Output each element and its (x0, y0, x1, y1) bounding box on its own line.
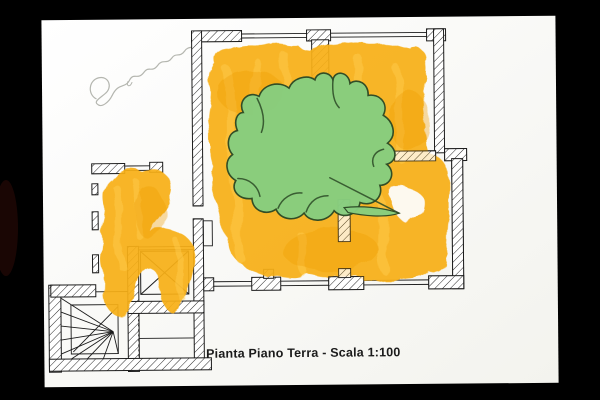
green-paper-cutout (226, 72, 399, 221)
floor-plan-drawing: Pianta Piano Terra - Scala 1:100 (0, 0, 600, 400)
plan-caption: Pianta Piano Terra - Scala 1:100 (206, 345, 401, 361)
photographed-floor-plan: Pianta Piano Terra - Scala 1:100 (0, 0, 600, 400)
